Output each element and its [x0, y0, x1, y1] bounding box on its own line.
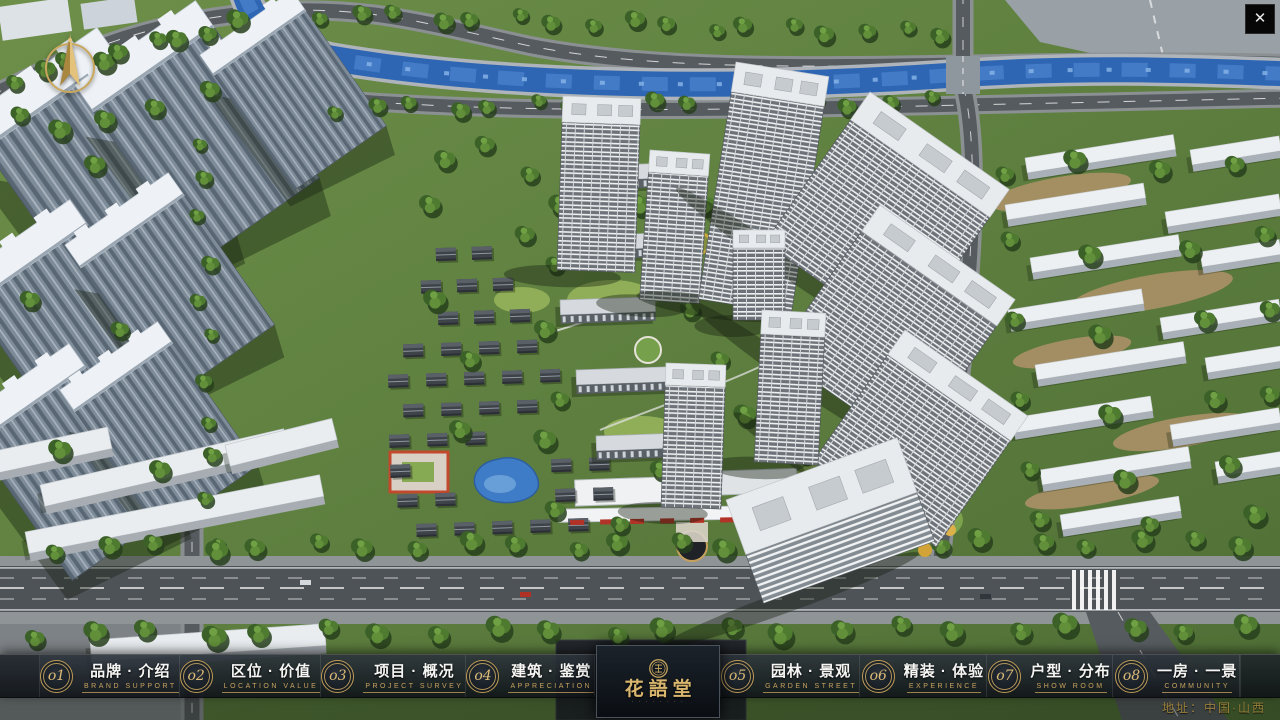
nav-subtitle: SHOW ROOM [1035, 683, 1107, 693]
nav-badge-05: o5 [721, 660, 754, 693]
project-address: 地址：中国·山西 [1162, 699, 1266, 716]
logo-title: 花語堂 [620, 680, 697, 700]
nav-item-project[interactable]: o3 项目 · 概况 PROJECT SURVEY [321, 655, 466, 697]
nav-item-floorplan[interactable]: o7 户型 · 分布 SHOW ROOM [987, 655, 1114, 697]
nav-title: 品牌 · 介绍 [90, 660, 170, 681]
navbar-edge [1240, 655, 1280, 697]
site-plan-rendering [0, 0, 1280, 720]
bottom-navbar: o1 品牌 · 介绍 BRAND SUPPORT o2 区位 · 价值 LOCA… [0, 654, 1280, 698]
nav-badge-03: o3 [321, 660, 354, 693]
nav-title: 精装 · 体验 [904, 660, 984, 681]
nav-subtitle: LOCATION VALUE [222, 683, 321, 693]
nav-item-architecture[interactable]: o4 建筑 · 鉴赏 APPRECIATION [466, 655, 595, 697]
compass-icon[interactable] [38, 30, 102, 98]
nav-item-brand[interactable]: o1 品牌 · 介绍 BRAND SUPPORT [40, 655, 180, 697]
project-logo[interactable]: 花語堂 · · · · · · · · [596, 645, 720, 718]
nav-title: 区位 · 价值 [231, 660, 311, 681]
nav-subtitle: BRAND SUPPORT [82, 683, 179, 693]
nav-item-community[interactable]: o8 一房 · 一景 COMMUNITY [1113, 655, 1240, 697]
navbar-edge [0, 655, 40, 697]
presentation-window: ✕ o1 品牌 · 介绍 BRAND SUPPORT o2 区位 · 价值 LO… [0, 0, 1280, 720]
nav-item-location[interactable]: o2 区位 · 价值 LOCATION VALUE [180, 655, 322, 697]
nav-subtitle: GARDEN STREET [763, 683, 859, 693]
nav-subtitle: APPRECIATION [508, 683, 594, 693]
garden-circle [635, 337, 661, 363]
nav-badge-02: o2 [180, 660, 213, 693]
nav-subtitle: PROJECT SURVEY [363, 683, 465, 693]
nav-title: 园林 · 景观 [771, 660, 851, 681]
nav-badge-04: o4 [466, 660, 499, 693]
nav-title: 建筑 · 鉴赏 [511, 660, 591, 681]
nav-title: 项目 · 概况 [374, 660, 454, 681]
logo-cell: 花語堂 · · · · · · · · [595, 655, 721, 697]
nav-subtitle: COMMUNITY [1162, 683, 1232, 693]
close-button[interactable]: ✕ [1245, 4, 1275, 34]
nav-badge-01: o1 [40, 660, 73, 693]
nav-item-landscape[interactable]: o5 园林 · 景观 GARDEN STREET [721, 655, 860, 697]
nav-title: 户型 · 分布 [1030, 660, 1110, 681]
nav-badge-07: o7 [988, 660, 1021, 693]
nav-title: 一房 · 一景 [1157, 660, 1237, 681]
nav-item-interior[interactable]: o6 精装 · 体验 EXPERIENCE [860, 655, 987, 697]
nav-badge-08: o8 [1115, 660, 1148, 693]
nav-badge-06: o6 [862, 660, 895, 693]
seal-icon [648, 658, 669, 679]
logo-subtext: · · · · · · · · [632, 700, 685, 705]
nav-subtitle: EXPERIENCE [907, 683, 981, 693]
